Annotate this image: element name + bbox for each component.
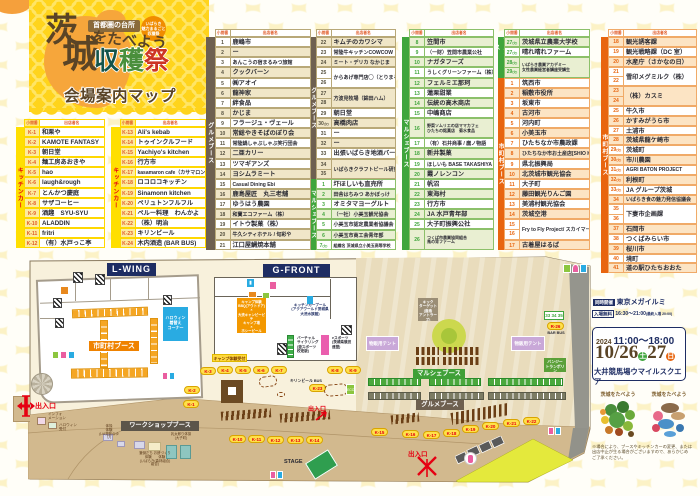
svg-text:茨城をたべよう: 茨城をたべよう <box>651 391 686 398</box>
svg-text:茨城をたべよう: 茨城をたべよう <box>600 391 635 398</box>
